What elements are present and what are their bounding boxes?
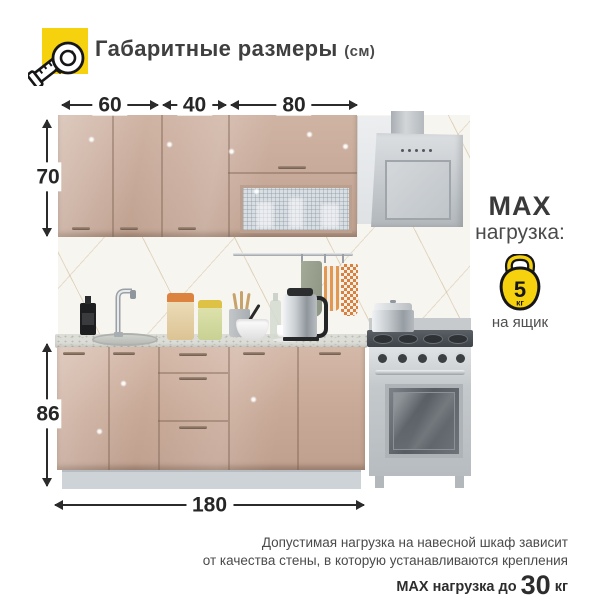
door-seam <box>297 347 299 470</box>
kettle-lid <box>287 288 313 296</box>
dimension-label: 180 <box>186 495 233 516</box>
stove-knob <box>378 354 387 363</box>
dimension-label: 70 <box>34 162 61 191</box>
dimension-total-width-180: 180 <box>55 504 364 506</box>
burner <box>423 334 443 344</box>
door-seam <box>112 115 114 237</box>
stove <box>367 318 473 488</box>
drawer-handle <box>179 377 207 380</box>
door-seam <box>158 347 160 470</box>
page-title: Габаритные размеры (см) <box>95 36 375 62</box>
footnote: Допустимая нагрузка на навесной шкаф зав… <box>128 534 568 599</box>
footnote-max-load: MAX нагрузка до 30 кг <box>128 572 568 599</box>
cabinet-handle <box>278 166 306 169</box>
cabinet-handle <box>120 227 138 230</box>
glint <box>120 380 127 387</box>
burner <box>448 334 468 344</box>
glint <box>253 188 260 195</box>
glint <box>306 131 313 138</box>
title-text: Габаритные размеры <box>95 36 338 61</box>
footnote-line2: от качества стены, в которую устанавлива… <box>128 552 568 570</box>
pasta-jar <box>198 307 222 340</box>
glint <box>250 396 257 403</box>
dimension-width-40: 40 <box>163 104 226 106</box>
cooking-pot <box>372 303 414 332</box>
rail-hook <box>324 254 326 263</box>
oven-handle <box>375 370 465 375</box>
pot-lid <box>374 303 412 310</box>
kettlebell-icon: 5 кг <box>452 254 588 312</box>
max-load-scope: на ящик <box>452 314 588 331</box>
door-seam <box>228 347 230 470</box>
glint <box>96 428 103 435</box>
stove-knob <box>398 354 407 363</box>
stove-knob <box>456 354 465 363</box>
bottle-silhouette <box>257 202 273 228</box>
footnote-max-value: 30 <box>521 570 551 600</box>
pot-body <box>372 310 414 332</box>
burner <box>373 334 393 344</box>
glint <box>88 136 95 143</box>
dimension-width-80: 80 <box>231 104 357 106</box>
gloss-highlight <box>57 347 365 470</box>
oven-window <box>385 384 463 458</box>
hood-button <box>422 149 425 152</box>
glint <box>228 148 235 155</box>
drawer-handle <box>179 353 207 356</box>
hood-duct <box>391 111 424 136</box>
drawer-handle <box>179 426 207 429</box>
footnote-line1: Допустимая нагрузка на навесной шкаф зав… <box>128 534 568 552</box>
electric-kettle <box>283 294 317 338</box>
max-load-title: MAX <box>452 192 588 220</box>
range-hood <box>371 133 463 227</box>
hood-button <box>429 149 432 152</box>
dimension-label: 60 <box>92 95 127 116</box>
stove-leg <box>455 476 464 488</box>
footnote-max-label: MAX нагрузка до <box>396 579 516 595</box>
glint <box>166 141 173 148</box>
title-unit: (см) <box>344 43 375 60</box>
product-dimensions-card: Габаритные размеры (см) <box>0 0 600 600</box>
wall-rail <box>233 253 353 256</box>
faucet <box>106 286 142 338</box>
stove-leg <box>375 476 384 488</box>
drawer-seam <box>158 420 228 422</box>
dimension-height-70: 70 <box>46 120 48 236</box>
cabinet-handle <box>319 352 341 355</box>
stove-knob <box>438 354 447 363</box>
hood-button <box>401 149 404 152</box>
base-cabinets <box>57 347 365 470</box>
hood-panel <box>385 160 451 220</box>
kettle-base <box>283 337 319 341</box>
rail-hook <box>342 254 344 263</box>
max-load-block: MAX нагрузка: 5 кг на ящик <box>452 192 588 331</box>
door-seam <box>108 347 110 470</box>
hood-button <box>408 149 411 152</box>
footnote-max-unit: кг <box>555 579 568 595</box>
dimension-label: 80 <box>276 95 311 116</box>
dimension-height-86: 86 <box>46 344 48 486</box>
cabinet-handle <box>72 227 90 230</box>
hood-button <box>415 149 418 152</box>
cabinet-handle <box>178 227 196 230</box>
door-seam <box>228 115 230 237</box>
dimension-width-60: 60 <box>62 104 158 106</box>
towel <box>341 264 358 316</box>
drawer-seam <box>158 372 228 374</box>
stove-knob <box>418 354 427 363</box>
glint <box>342 143 349 150</box>
soap-dispenser <box>80 303 96 335</box>
cabinet-handle <box>113 352 135 355</box>
cabinet-handle <box>243 352 265 355</box>
cabinet-handle <box>63 352 85 355</box>
bottle-silhouette <box>289 198 303 228</box>
flap-seam <box>228 172 357 174</box>
bottle-silhouette <box>321 204 339 228</box>
door-seam <box>161 115 163 237</box>
dimension-label: 40 <box>177 95 212 116</box>
pasta-jar <box>167 301 194 340</box>
tape-measure-icon <box>42 28 88 74</box>
max-load-subtitle: нагрузка: <box>452 220 588 245</box>
dimension-label: 86 <box>34 399 61 428</box>
burner <box>398 334 418 344</box>
plinth <box>62 470 361 489</box>
max-load-weight-unit: кг <box>516 297 524 307</box>
